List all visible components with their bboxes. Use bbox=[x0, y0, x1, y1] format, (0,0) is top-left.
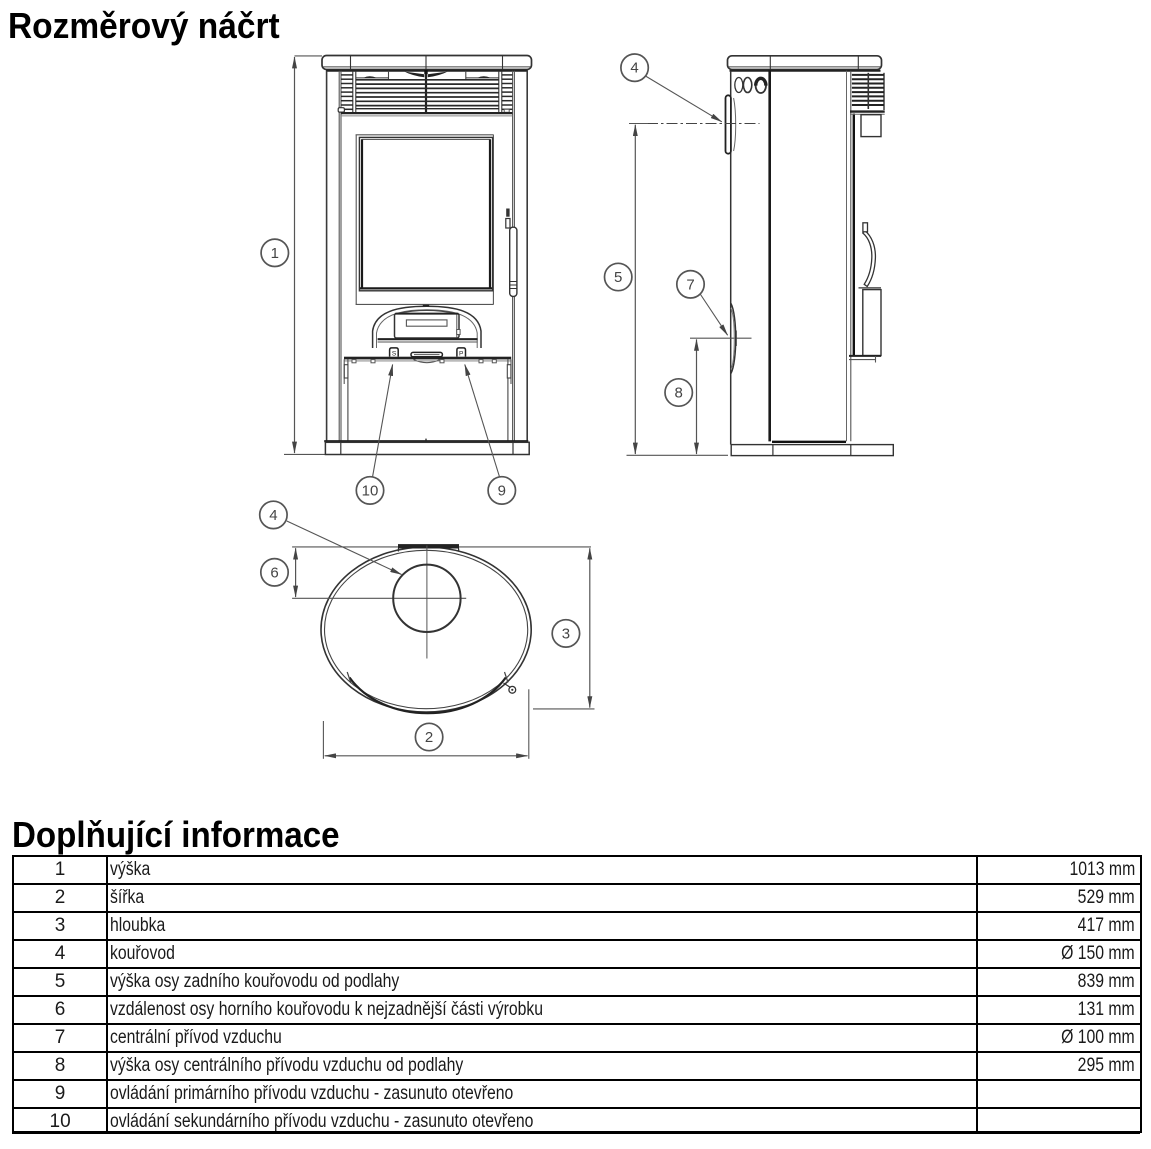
svg-text:6: 6 bbox=[270, 564, 278, 581]
svg-text:S: S bbox=[392, 350, 397, 357]
svg-text:1: 1 bbox=[271, 245, 279, 262]
svg-text:8: 8 bbox=[675, 385, 683, 402]
svg-text:7: 7 bbox=[686, 276, 694, 293]
svg-text:5: 5 bbox=[614, 269, 622, 286]
svg-text:4: 4 bbox=[269, 507, 277, 524]
svg-text:9: 9 bbox=[498, 482, 506, 499]
svg-text:P: P bbox=[459, 350, 463, 357]
svg-text:3: 3 bbox=[562, 625, 570, 642]
svg-text:2: 2 bbox=[425, 729, 433, 746]
svg-text:10: 10 bbox=[362, 482, 379, 499]
svg-text:4: 4 bbox=[630, 60, 638, 77]
